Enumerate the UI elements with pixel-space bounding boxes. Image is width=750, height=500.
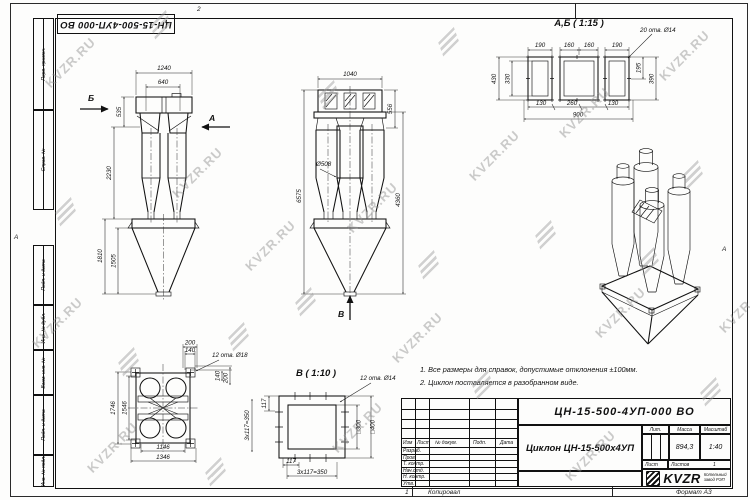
dim-label: 3х117=350 [244,410,251,441]
plan-view: 200 140 12 отв. Ø18 140 200 1746 1546 11… [110,340,248,464]
note-line-2: 2. Циклон поставляется в разобранном вид… [420,376,638,389]
col-data: Дата [500,440,513,446]
dim-label: 390 [649,73,656,84]
holes-note: 12 отв. Ø14 [360,375,396,382]
dim-label: Ø508 [315,161,332,168]
sheets-value: 1 [713,462,716,468]
titleblock-designation: ЦН-15-500-4УП-000 ВО [518,398,731,425]
titleblock-empty-cell [518,471,642,487]
view-title: В ( 1:10 ) [296,368,336,379]
dim-label: 160 [564,42,575,49]
section-label-a: А [208,113,215,123]
dim-label: 1505 [111,254,118,268]
dim-label: 3х117=350 [297,469,328,476]
col-podp: Подп. [473,440,486,446]
isometric-view [600,149,700,344]
col-doc: № докум. [435,440,457,446]
dim-label: 130 [608,100,619,107]
scale-value: 1:40 [700,434,731,460]
lit-cells [642,434,669,460]
dim-label: 1240 [157,65,171,72]
dim-label: □400 [370,419,377,434]
holes-note: 12 отв. Ø18 [212,352,248,359]
sheet-cell: Лист [642,460,668,469]
lit-header: Лит. [642,425,669,434]
dim-label: 1346 [156,454,170,461]
dim-label: 195 [636,62,643,73]
v-view: В ( 1:10 ) 12 отв. Ø14 117 3х117=350 □30… [244,368,396,479]
side-view: 1040 556 Ø508 6575 4360 В [296,71,406,320]
mass-header: Масса [669,425,700,434]
dim-label: 556 [387,103,394,114]
titleblock-name: Циклон ЦН-15-500х4УП [518,425,642,471]
scale-header: Масштаб [700,425,731,434]
dim-label: 117 [286,458,296,465]
dim-label: 1546 [122,401,129,415]
dim-label: 535 [116,106,123,117]
row-utv: Утв. [403,481,414,487]
holes-note: 20 отв. Ø14 [639,27,676,34]
dim-label: 130 [536,100,547,107]
ab-view: А,Б ( 1:15 ) 20 отв. Ø14 190 160 160 190… [491,18,676,122]
dim-label: 140 [185,347,196,354]
col-list: Лист [417,440,430,446]
row-nkontr: Н. контр. [403,474,426,480]
dim-label: 160 [584,42,595,49]
dim-label: 117 [261,398,268,408]
dim-label: 260 [566,100,578,107]
row-prov: Пров. [403,455,416,461]
change-table: Изм Лист № докум. Подп. Дата Разраб. Про… [401,398,518,487]
notes-block: 1. Все размеры для справок, допустимые о… [420,363,638,389]
note-line-1: 1. Все размеры для справок, допустимые о… [420,363,638,376]
dim-label: □300 [356,419,363,434]
row-nachotd: Нач.отд. [403,468,424,474]
col-izm: Изм [403,440,412,446]
kvzr-logo-text: KVZR [663,471,700,486]
dim-label: 900 [573,112,584,119]
dim-label: 430 [491,73,498,84]
dim-label: 2230 [106,166,113,181]
dim-label: 1746 [110,401,117,415]
view-title: А,Б ( 1:15 ) [553,18,604,29]
dim-label: 200 [184,340,196,347]
sheets-cell: Листов 1 [668,460,731,469]
dim-label: 1146 [156,444,170,451]
dim-label: 6575 [296,189,303,203]
drawing-sheet: 2 1 А А Копировал Формат А3 Перв. примен… [0,0,750,500]
mass-value: 894,3 [669,434,700,460]
company-name: Котельный завод РЭП [704,473,727,482]
dim-label: 1040 [343,71,357,78]
section-label-v: В [338,309,344,319]
dim-label: 330 [505,73,512,84]
kvzr-logo-icon [646,471,660,486]
dim-label: 4360 [395,193,402,207]
front-view: 1240 640 535 2230 1810 1505 Б А [80,65,230,300]
dim-label: 1810 [97,249,104,263]
section-label-b: Б [88,93,94,103]
dim-label: 640 [158,79,169,86]
dim-label: 140 [215,370,222,381]
row-razrab: Разраб. [403,448,421,454]
dim-label: 200 [223,372,230,384]
dim-label: 190 [535,42,546,49]
company-cell: KVZR Котельный завод РЭП [642,469,731,487]
row-tkontr: Т. контр. [403,461,425,467]
dim-label: 190 [612,42,623,49]
